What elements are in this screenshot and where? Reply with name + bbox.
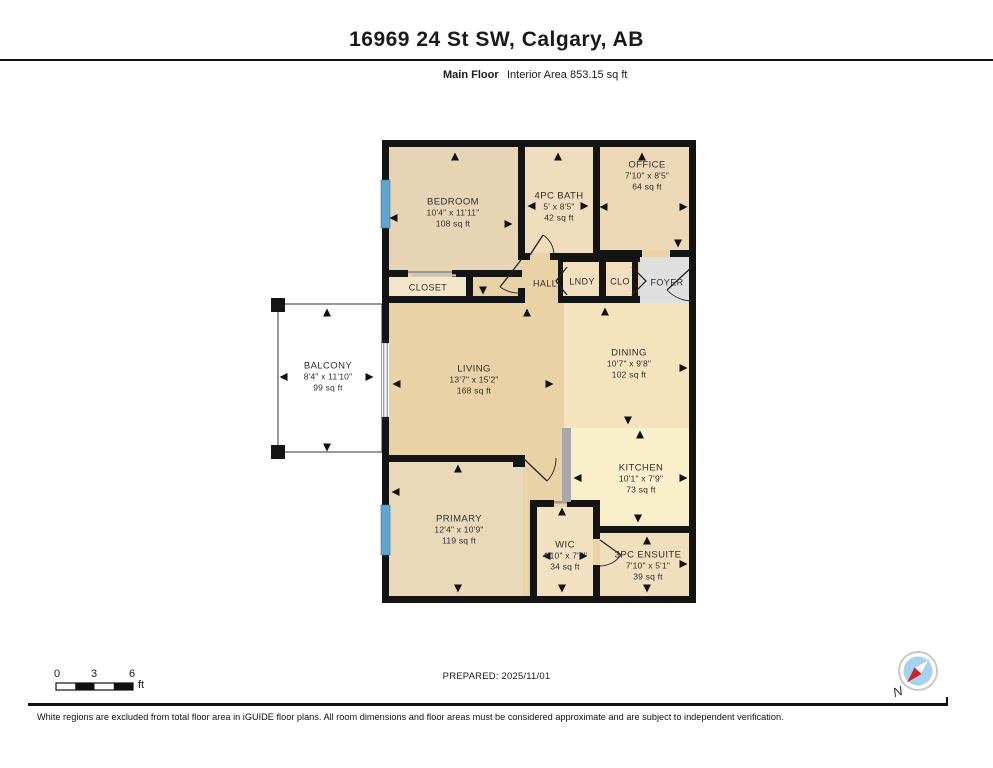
room-label-balcony: BALCONY 8'4" x 11'10" 99 sq ft <box>304 361 353 394</box>
room-name: LNDY <box>569 277 595 288</box>
room-name: DINING <box>607 348 651 359</box>
room-label-hall: HALL <box>533 279 557 290</box>
room-name: KITCHEN <box>619 463 664 474</box>
room-area: 99 sq ft <box>304 383 353 394</box>
room-name: 3PC ENSUITE <box>615 550 682 561</box>
room-area: 34 sq ft <box>543 562 587 573</box>
room-name: 4PC BATH <box>535 191 584 202</box>
scale-bar-graphic <box>56 683 133 690</box>
room-dims: 10'1" x 7'9" <box>619 474 664 485</box>
room-label-dining: DINING 10'7" x 9'8" 102 sq ft <box>607 348 651 381</box>
room-label-laundry: LNDY <box>569 277 595 288</box>
room-dims: 8'4" x 11'10" <box>304 372 353 383</box>
room-name: FOYER <box>650 278 683 289</box>
room-label-office: OFFICE 7'10" x 8'5" 64 sq ft <box>625 160 669 193</box>
room-label-living: LIVING 13'7" x 15'2" 168 sq ft <box>449 364 498 397</box>
room-label-foyer: FOYER <box>650 278 683 289</box>
room-dims: 4'10" x 7'3" <box>543 551 587 562</box>
room-name: WIC <box>543 540 587 551</box>
closet-bypass-door <box>408 271 452 273</box>
room-name: BALCONY <box>304 361 353 372</box>
room-label-ensuite: 3PC ENSUITE 7'10" x 5'1" 39 sq ft <box>615 550 682 583</box>
room-name: CLOSET <box>409 283 447 294</box>
prepared-date: PREPARED: 2025/11/01 <box>0 671 993 682</box>
room-name: LIVING <box>449 364 498 375</box>
primary-window <box>381 505 390 555</box>
room-label-bath: 4PC BATH 5' x 8'5" 42 sq ft <box>535 191 584 224</box>
room-area: 39 sq ft <box>615 572 682 583</box>
room-name: BEDROOM <box>427 197 480 208</box>
footer-divider-tick <box>946 697 949 705</box>
room-name: CLO <box>610 277 630 288</box>
floorplan-page: 16969 24 St SW, Calgary, AB Main Floor I… <box>0 0 993 768</box>
room-label-closet: CLOSET <box>409 283 447 294</box>
room-dims: 10'7" x 9'8" <box>607 359 651 370</box>
room-area: 108 sq ft <box>427 219 480 230</box>
room-area: 119 sq ft <box>434 536 483 547</box>
room-name: PRIMARY <box>434 514 483 525</box>
room-label-clo: CLO <box>610 277 630 288</box>
room-area: 64 sq ft <box>625 182 669 193</box>
kitchen-counter <box>562 428 571 502</box>
disclaimer-text: White regions are excluded from total fl… <box>37 712 967 722</box>
room-dims: 7'10" x 8'5" <box>625 171 669 182</box>
room-dims: 7'10" x 5'1" <box>615 561 682 572</box>
room-area: 102 sq ft <box>607 370 651 381</box>
room-area: 73 sq ft <box>619 485 664 496</box>
bedroom-window <box>381 180 390 228</box>
room-label-primary: PRIMARY 12'4" x 10'9" 119 sq ft <box>434 514 483 547</box>
room-area: 42 sq ft <box>535 213 584 224</box>
footer-divider <box>28 703 948 706</box>
room-name: HALL <box>533 279 557 290</box>
room-label-bedroom: BEDROOM 10'4" x 11'11" 108 sq ft <box>427 197 480 230</box>
room-dims: 5' x 8'5" <box>535 202 584 213</box>
room-label-wic: WIC 4'10" x 7'3" 34 sq ft <box>543 540 587 573</box>
room-area: 168 sq ft <box>449 386 498 397</box>
room-dims: 13'7" x 15'2" <box>449 375 498 386</box>
room-dims: 10'4" x 11'11" <box>427 208 480 219</box>
room-dims: 12'4" x 10'9" <box>434 525 483 536</box>
room-name: OFFICE <box>625 160 669 171</box>
room-label-kitchen: KITCHEN 10'1" x 7'9" 73 sq ft <box>619 463 664 496</box>
